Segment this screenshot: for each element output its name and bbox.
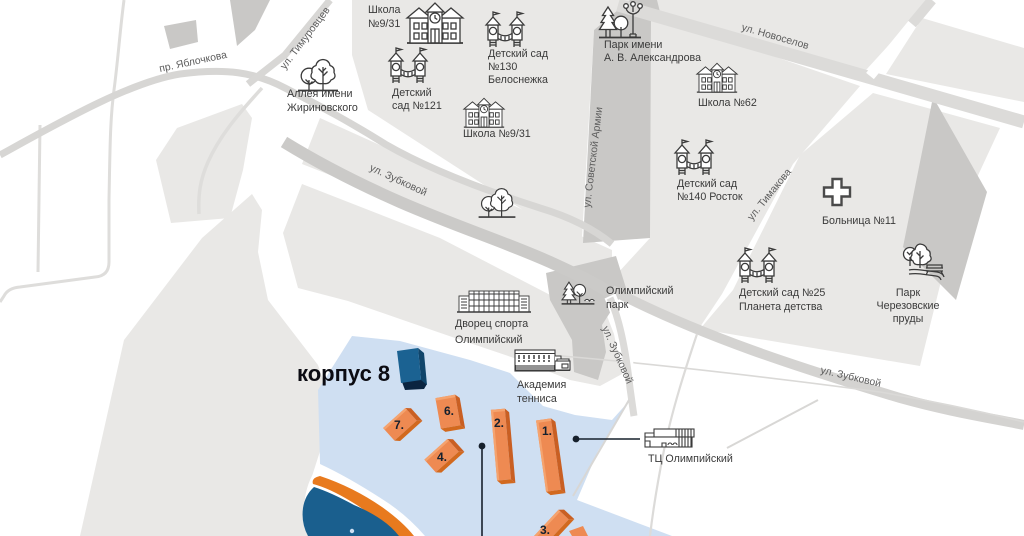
svg-text:3.: 3.	[540, 523, 550, 536]
svg-text:№9/31: №9/31	[368, 18, 400, 30]
svg-text:пруды: пруды	[893, 313, 924, 325]
svg-text:4.: 4.	[437, 450, 447, 464]
svg-text:Академия: Академия	[517, 379, 566, 391]
svg-text:Школа №62: Школа №62	[698, 97, 757, 109]
svg-text:Черезовские: Черезовские	[877, 300, 940, 312]
svg-text:7.: 7.	[394, 418, 404, 432]
svg-text:Школа: Школа	[368, 4, 401, 16]
svg-text:сад №121: сад №121	[392, 100, 442, 112]
svg-text:корпус 8: корпус 8	[297, 361, 390, 386]
svg-text:Парк имени: Парк имени	[604, 39, 662, 51]
svg-text:Детский сад: Детский сад	[488, 48, 549, 60]
svg-text:Олимпийский: Олимпийский	[455, 334, 522, 346]
svg-text:№140 Росток: №140 Росток	[677, 191, 743, 203]
svg-text:1.: 1.	[542, 424, 552, 438]
svg-text:Жириновского: Жириновского	[287, 102, 358, 114]
svg-text:2.: 2.	[494, 416, 504, 430]
svg-text:парк: парк	[606, 299, 629, 311]
svg-text:Детский сад №25: Детский сад №25	[739, 287, 825, 299]
svg-text:Белоснежка: Белоснежка	[488, 74, 548, 86]
svg-text:Аллея имени: Аллея имени	[287, 88, 352, 100]
svg-text:Парк: Парк	[896, 287, 921, 299]
svg-text:Детский сад: Детский сад	[677, 178, 738, 190]
svg-text:Планета детства: Планета детства	[739, 301, 822, 313]
svg-text:А. В. Александрова: А. В. Александрова	[604, 52, 701, 64]
svg-text:Больница №11: Больница №11	[822, 215, 896, 227]
svg-text:6.: 6.	[444, 404, 454, 418]
svg-text:Школа №9/31: Школа №9/31	[463, 128, 531, 140]
svg-text:Олимпийский: Олимпийский	[606, 285, 673, 297]
svg-text:Дворец спорта: Дворец спорта	[455, 318, 528, 330]
svg-text:Детский: Детский	[392, 87, 432, 99]
svg-text:тенниса: тенниса	[517, 393, 557, 405]
svg-text:ТЦ Олимпийский: ТЦ Олимпийский	[648, 453, 733, 465]
svg-text:№130: №130	[488, 61, 517, 73]
